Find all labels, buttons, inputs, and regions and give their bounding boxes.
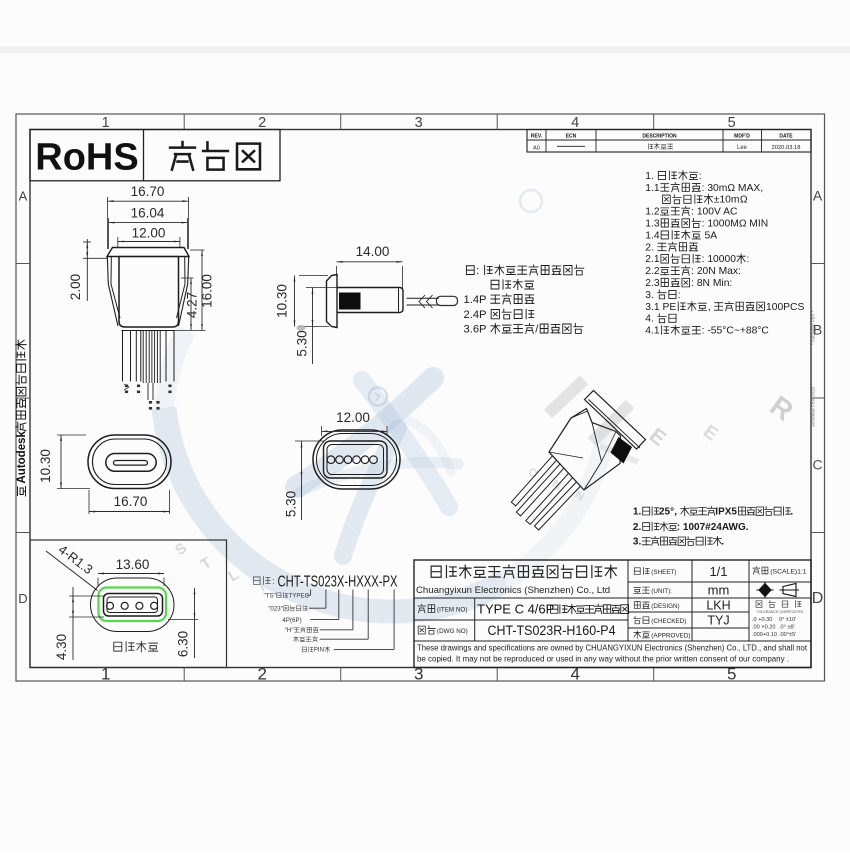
svg-text:MDF'D: MDF'D bbox=[734, 133, 750, 139]
svg-text:4.27: 4.27 bbox=[185, 292, 200, 318]
svg-text:: 1000M: : 1000M bbox=[702, 219, 739, 230]
svg-text:: 10000: : 10000 bbox=[702, 254, 737, 265]
svg-text:4.30: 4.30 bbox=[54, 634, 69, 660]
svg-text:Ω: Ω bbox=[739, 219, 747, 230]
svg-text:14.00: 14.00 bbox=[356, 244, 390, 259]
svg-text:1.1: 1.1 bbox=[645, 183, 660, 194]
svg-text:2.1: 2.1 bbox=[645, 254, 660, 265]
svg-text:1.: 1. bbox=[633, 507, 642, 518]
svg-text:(CHECKED): (CHECKED) bbox=[651, 618, 686, 625]
svg-text:(DESIGN): (DESIGN) bbox=[651, 603, 679, 610]
svg-text:TYPEC: TYPEC bbox=[289, 592, 310, 599]
svg-text:,: , bbox=[708, 302, 711, 313]
svg-text:2: 2 bbox=[257, 665, 266, 684]
svg-text:10.30: 10.30 bbox=[38, 449, 53, 483]
svg-text:25°: 25° bbox=[659, 507, 674, 518]
svg-text:D: D bbox=[18, 591, 27, 606]
svg-text:These drawings and specificati: These drawings and specifications are ow… bbox=[417, 644, 808, 653]
svg-text:10.30: 10.30 bbox=[275, 284, 290, 318]
svg-text:DESCRIPTION: DESCRIPTION bbox=[642, 133, 677, 139]
svg-text:IPX5: IPX5 bbox=[715, 507, 737, 518]
svg-text:12.00: 12.00 bbox=[336, 410, 370, 425]
svg-text:13.60: 13.60 bbox=[116, 557, 150, 572]
svg-text:1.4P: 1.4P bbox=[464, 294, 487, 306]
svg-text:TYPE C 4/6P: TYPE C 4/6P bbox=[477, 602, 554, 617]
svg-text:(DWG NO): (DWG NO) bbox=[437, 628, 468, 635]
svg-text:TYJ: TYJ bbox=[707, 614, 729, 628]
svg-text::: : bbox=[476, 265, 479, 277]
svg-text:(SHEET): (SHEET) bbox=[651, 569, 676, 576]
svg-text:4.1: 4.1 bbox=[645, 326, 660, 337]
svg-text:5: 5 bbox=[728, 115, 736, 131]
svg-text:: -55: : -55 bbox=[702, 326, 723, 337]
svg-text:D: D bbox=[812, 590, 824, 607]
svg-text:.0° ±8': .0° ±8' bbox=[779, 625, 795, 631]
svg-text:LKH: LKH bbox=[706, 599, 730, 613]
svg-text:1.2: 1.2 bbox=[645, 207, 660, 218]
svg-text:5.30: 5.30 bbox=[284, 491, 299, 517]
svg-text:4.: 4. bbox=[645, 314, 654, 325]
svg-text:.: . bbox=[790, 507, 793, 518]
svg-text:mm: mm bbox=[708, 583, 730, 598]
svg-text:A: A bbox=[19, 189, 28, 204]
svg-text:"H": "H" bbox=[285, 627, 294, 634]
svg-text:TOLERANCE UNSPECIFIED: TOLERANCE UNSPECIFIED bbox=[756, 610, 803, 614]
svg-text:.000+0.10: .000+0.10 bbox=[752, 632, 777, 638]
svg-text:CHT-TS023R-H160-P4: CHT-TS023R-H160-P4 bbox=[488, 623, 616, 638]
svg-text::: : bbox=[678, 290, 681, 301]
svg-text:16.70: 16.70 bbox=[114, 494, 148, 509]
svg-text:A: A bbox=[813, 188, 823, 204]
svg-text:2.00: 2.00 bbox=[68, 274, 83, 300]
svg-text:: 1007#24AWG.: : 1007#24AWG. bbox=[677, 522, 749, 533]
svg-text:2.: 2. bbox=[645, 242, 654, 253]
svg-text:1.4: 1.4 bbox=[645, 230, 660, 241]
svg-text:PIN: PIN bbox=[314, 647, 324, 654]
svg-text:.0 +0.30: .0 +0.30 bbox=[752, 617, 772, 623]
svg-text:°C~+88: °C~+88 bbox=[722, 326, 757, 337]
svg-text:.: . bbox=[721, 537, 724, 548]
svg-text:16.00: 16.00 bbox=[200, 274, 215, 308]
svg-text:1.: 1. bbox=[645, 171, 654, 182]
svg-text:2.2: 2.2 bbox=[645, 266, 660, 277]
svg-text:MAX,: MAX, bbox=[738, 183, 763, 194]
svg-text:°C: °C bbox=[757, 326, 769, 337]
svg-text:100PCS: 100PCS bbox=[766, 302, 804, 313]
svg-text::: : bbox=[272, 576, 275, 587]
svg-text:2: 2 bbox=[258, 115, 266, 131]
svg-text:1.3: 1.3 bbox=[645, 219, 660, 230]
svg-text:(SCALE)1:1: (SCALE)1:1 bbox=[770, 568, 806, 575]
svg-text:Ω: Ω bbox=[727, 183, 735, 194]
svg-text:6.30: 6.30 bbox=[176, 631, 191, 657]
svg-text:MIN: MIN bbox=[749, 219, 768, 230]
svg-text:3.: 3. bbox=[633, 537, 642, 548]
svg-text:Autodesk FBX 2020: Autodesk FBX 2020 bbox=[811, 386, 816, 427]
svg-text:(ITEM NO): (ITEM NO) bbox=[437, 607, 467, 614]
svg-text:5.30: 5.30 bbox=[295, 330, 310, 356]
svg-text:12.00: 12.00 bbox=[132, 226, 166, 241]
svg-text:: 30m: : 30m bbox=[702, 183, 728, 194]
svg-text:1: 1 bbox=[102, 115, 110, 131]
svg-text:.00 +0.20: .00 +0.20 bbox=[752, 625, 775, 631]
svg-text:"TS": "TS" bbox=[264, 592, 276, 599]
svg-text:CHT-TS023X-HXXX-PX: CHT-TS023X-HXXX-PX bbox=[278, 574, 398, 591]
svg-text:: 8N Min:: : 8N Min: bbox=[691, 278, 732, 289]
svg-text:C: C bbox=[812, 457, 822, 473]
svg-text:0° ±10': 0° ±10' bbox=[779, 617, 796, 623]
svg-text:: 100V AC: : 100V AC bbox=[691, 207, 738, 218]
svg-text:3.6P: 3.6P bbox=[464, 323, 487, 335]
svg-text:2.3: 2.3 bbox=[645, 278, 660, 289]
svg-text:1/1: 1/1 bbox=[709, 564, 727, 579]
svg-text:: 20N Max:: : 20N Max: bbox=[691, 266, 741, 277]
svg-text:3: 3 bbox=[415, 115, 423, 131]
svg-text:Chuangyixun Electronics (Shenz: Chuangyixun Electronics (Shenzhen) Co., … bbox=[416, 585, 610, 596]
svg-text:4P(6P): 4P(6P) bbox=[282, 617, 301, 624]
svg-text:"023": "023" bbox=[268, 605, 283, 612]
svg-text:Lee: Lee bbox=[737, 145, 748, 151]
svg-text:Ω: Ω bbox=[740, 195, 748, 206]
svg-text:* Autodesk FBX *: * Autodesk FBX * bbox=[811, 310, 816, 345]
svg-text::: : bbox=[747, 254, 750, 265]
svg-text:DATE: DATE bbox=[779, 133, 793, 139]
svg-text:,: , bbox=[674, 507, 677, 518]
svg-text:3.: 3. bbox=[645, 290, 654, 301]
svg-text:(APPROVED): (APPROVED) bbox=[651, 632, 690, 639]
svg-text:16.70: 16.70 bbox=[131, 184, 165, 199]
svg-text:2.4P: 2.4P bbox=[464, 309, 487, 321]
svg-text:ECN: ECN bbox=[566, 133, 577, 139]
svg-text:2.: 2. bbox=[633, 522, 642, 533]
svg-text:5A: 5A bbox=[705, 230, 718, 241]
svg-text:2020.03.18: 2020.03.18 bbox=[771, 145, 800, 151]
svg-text:±10m: ±10m bbox=[714, 195, 740, 206]
svg-text:16.04: 16.04 bbox=[131, 206, 165, 221]
svg-text:3.1 PE: 3.1 PE bbox=[645, 302, 676, 313]
svg-text:A0: A0 bbox=[533, 145, 540, 151]
svg-text:.00°±5': .00°±5' bbox=[779, 632, 796, 638]
svg-text:REV.: REV. bbox=[531, 133, 543, 139]
svg-text::: : bbox=[699, 171, 702, 182]
svg-text:RoHS: RoHS bbox=[35, 137, 138, 179]
svg-text:Autodesk: Autodesk bbox=[16, 431, 28, 484]
svg-text:4: 4 bbox=[571, 115, 579, 131]
svg-text:(UNIT):: (UNIT): bbox=[651, 588, 672, 595]
svg-text:be copied. It may not be repro: be copied. It may not be reproduced or u… bbox=[417, 655, 789, 664]
